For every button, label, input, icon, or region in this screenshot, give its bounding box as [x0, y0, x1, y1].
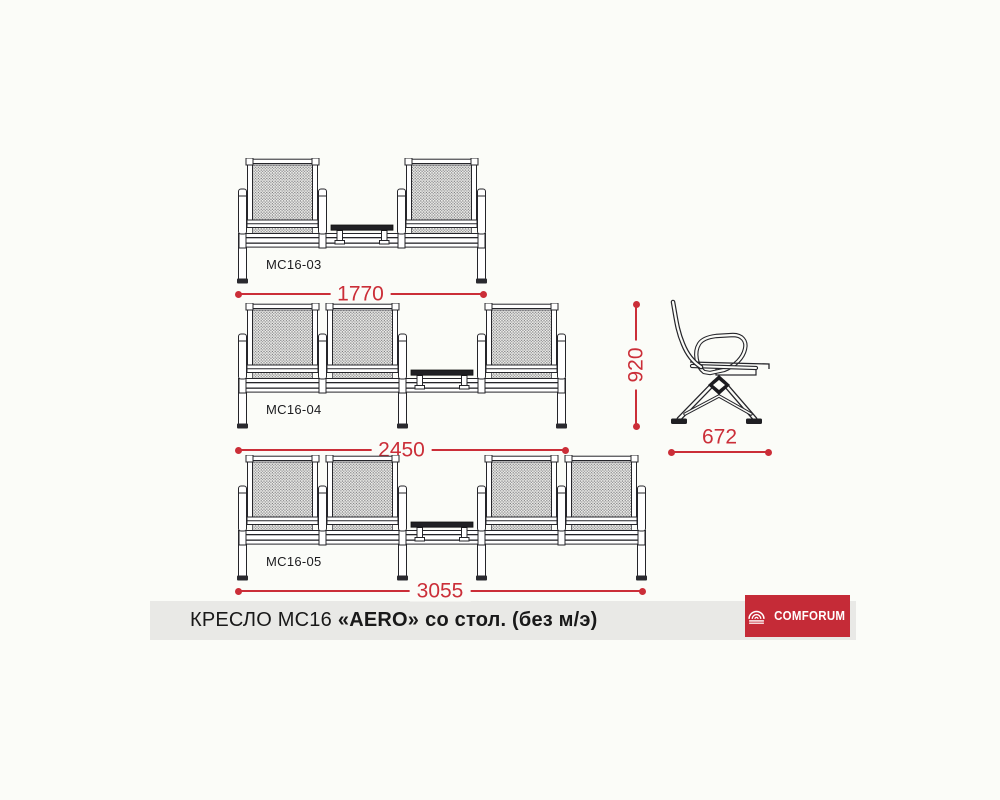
dim-depth-dot-end — [765, 449, 772, 456]
side-view-drawing — [652, 296, 777, 432]
dim-depth-value: 672 — [702, 427, 737, 448]
dim-width-MC16-05-dot-start — [235, 588, 242, 595]
logo-text: COMFORUM — [774, 609, 845, 623]
dim-width-MC16-04-dot-start — [235, 447, 242, 454]
dim-depth-dot-start — [668, 449, 675, 456]
awning-icon — [747, 608, 766, 625]
title-prefix: КРЕСЛО МС16 — [190, 609, 332, 632]
canvas: КРЕСЛО МС16 «AERO» со стол. (без м/э) CO… — [0, 0, 1000, 800]
dim-width-MC16-04-dot-end — [562, 447, 569, 454]
bench-label-MC16-05: MC16-05 — [266, 554, 322, 569]
dim-width-MC16-05-dot-end — [639, 588, 646, 595]
dim-depth-line — [671, 451, 768, 453]
dim-width-MC16-05-value: 3055 — [410, 581, 471, 602]
dim-height-value: 920 — [626, 340, 647, 389]
title-model: «AERO» — [338, 609, 419, 632]
bench-label-MC16-04: MC16-04 — [266, 402, 322, 417]
page-title: КРЕСЛО МС16 «AERO» со стол. (без м/э) — [190, 601, 598, 640]
comforum-logo: COMFORUM — [745, 595, 850, 637]
dim-width-MC16-03-dot-end — [480, 291, 487, 298]
dim-width-MC16-03-dot-start — [235, 291, 242, 298]
dim-width-MC16-03-value: 1770 — [330, 284, 391, 305]
dim-height-dot-start — [633, 301, 640, 308]
dim-height-dot-end — [633, 423, 640, 430]
bench-label-MC16-03: MC16-03 — [266, 257, 322, 272]
title-suffix: со стол. (без м/э) — [425, 609, 597, 632]
